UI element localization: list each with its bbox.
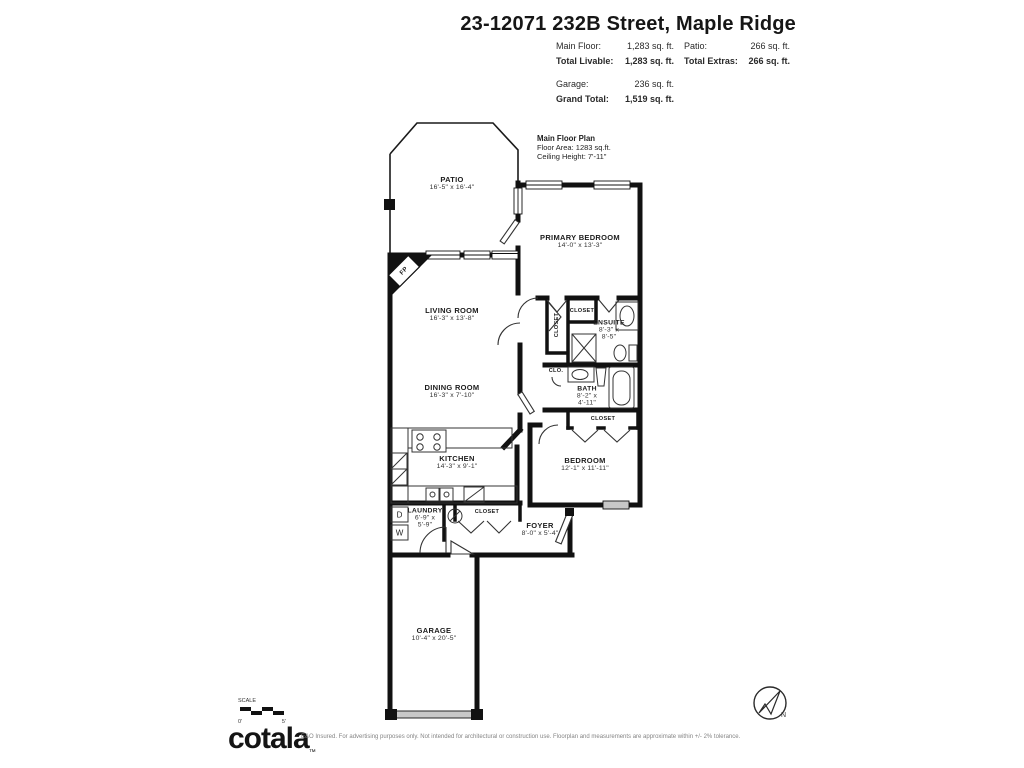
- room-label-laundry: LAUNDRY 6'-9" x 5'-9": [407, 508, 442, 529]
- washer-label: W: [396, 528, 404, 537]
- floorplan-page: 23-12071 232B Street, Maple Ridge Main F…: [0, 0, 1024, 768]
- stat-total-extras: Total Extras: 266 sq. ft.: [684, 56, 790, 67]
- garage-door: [385, 709, 483, 720]
- plan-note: Main Floor Plan Floor Area: 1283 sq.ft. …: [537, 134, 611, 161]
- room-label-bedroom: BEDROOM 12'-1" x 11'-11": [561, 456, 609, 472]
- stat-garage: Garage: 236 sq. ft.: [556, 79, 674, 90]
- north-label: N: [781, 712, 786, 719]
- stat-grand-total: Grand Total: 1,519 sq. ft.: [556, 94, 674, 105]
- disclaimer-text: E&O Insured. For advertising purposes on…: [301, 734, 791, 741]
- scale-bar: [240, 707, 284, 715]
- closet-label-ensuite: CLOSET: [570, 308, 595, 314]
- room-label-garage: GARAGE 10'-4" x 20'-5": [412, 626, 457, 642]
- room-label-ensuite: ENSUITE 8'-3" x 8'-5": [593, 320, 625, 341]
- stat-total-livable: Total Livable: 1,283 sq. ft.: [556, 56, 674, 67]
- floorplan-drawing: [0, 0, 1024, 768]
- room-label-primary-bedroom: PRIMARY BEDROOM 14'-0" x 13'-3": [540, 233, 620, 249]
- room-label-patio: PATIO 16'-5" x 16'-4": [430, 175, 475, 191]
- closet-label-bedroom: CLOSET: [591, 416, 616, 422]
- closet-label-primary: CLOSET: [554, 313, 560, 338]
- room-label-dining-room: DINING ROOM 16'-3" x 7'-10": [425, 383, 480, 399]
- bedroom-window: [603, 501, 629, 509]
- page-title: 23-12071 232B Street, Maple Ridge: [460, 13, 796, 36]
- room-label-bath: BATH 8'-2" x 4'-11": [577, 386, 597, 407]
- stats-right-column: Patio: 266 sq. ft. Total Extras: 266 sq.…: [684, 41, 790, 71]
- room-label-foyer: FOYER 8'-0" x 5'-4": [522, 521, 559, 537]
- stats-left-column: Main Floor: 1,283 sq. ft. Total Livable:…: [556, 41, 674, 109]
- scale-label: SCALE: [238, 698, 256, 704]
- fireplace: [388, 255, 432, 299]
- room-label-kitchen: KITCHEN 14'-3" x 9'-1": [437, 454, 478, 470]
- dryer-label: D: [397, 510, 403, 519]
- closet-small-label: CLO.: [549, 368, 564, 374]
- stat-patio: Patio: 266 sq. ft.: [684, 41, 790, 52]
- room-label-living-room: LIVING ROOM 16'-3" x 13'-8": [425, 306, 479, 322]
- closet-label-foyer: CLOSET: [475, 509, 500, 515]
- stat-main-floor: Main Floor: 1,283 sq. ft.: [556, 41, 674, 52]
- patio-post: [384, 199, 395, 210]
- logo-trademark: ™: [309, 749, 316, 756]
